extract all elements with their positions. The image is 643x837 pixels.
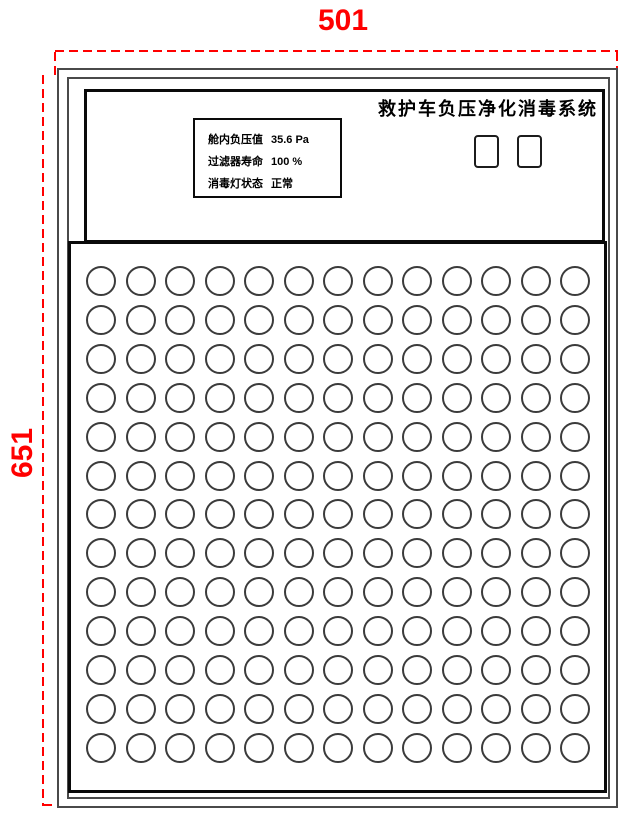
vent-hole bbox=[323, 305, 353, 335]
vent-hole bbox=[323, 499, 353, 529]
vent-hole bbox=[560, 733, 590, 763]
vent-hole bbox=[205, 538, 235, 568]
vent-hole bbox=[205, 577, 235, 607]
vent-hole bbox=[323, 538, 353, 568]
status-display: 舱内负压值 35.6 Pa 过滤器寿命 100 % 消毒灯状态 正常 bbox=[193, 118, 342, 198]
vent-hole bbox=[165, 694, 195, 724]
vent-hole bbox=[521, 538, 551, 568]
vent-hole bbox=[205, 655, 235, 685]
vent-hole bbox=[363, 733, 393, 763]
vent-hole bbox=[521, 655, 551, 685]
control-section: 救护车负压净化消毒系统 舱内负压值 35.6 Pa 过滤器寿命 100 % 消毒… bbox=[84, 89, 605, 243]
status-label: 消毒灯状态 bbox=[208, 173, 263, 195]
vent-hole bbox=[165, 538, 195, 568]
vent-hole bbox=[165, 655, 195, 685]
vent-hole bbox=[284, 461, 314, 491]
vent-hole bbox=[402, 538, 432, 568]
vent-hole bbox=[521, 616, 551, 646]
vent-hole bbox=[244, 577, 274, 607]
vent-hole bbox=[363, 499, 393, 529]
vent-hole bbox=[442, 499, 472, 529]
vent-hole bbox=[560, 577, 590, 607]
vent-hole bbox=[165, 422, 195, 452]
vent-hole bbox=[442, 461, 472, 491]
dimension-line-top bbox=[55, 50, 618, 52]
vent-hole bbox=[205, 422, 235, 452]
vent-hole bbox=[126, 694, 156, 724]
vent-hole bbox=[244, 499, 274, 529]
vent-hole bbox=[126, 305, 156, 335]
status-line-pressure: 舱内负压值 35.6 Pa bbox=[208, 129, 340, 151]
vent-hole bbox=[521, 461, 551, 491]
vent-hole bbox=[126, 383, 156, 413]
vent-hole bbox=[284, 538, 314, 568]
vent-hole bbox=[442, 422, 472, 452]
vent-hole bbox=[442, 266, 472, 296]
vent-hole bbox=[205, 305, 235, 335]
vent-hole bbox=[442, 344, 472, 374]
vent-hole bbox=[323, 733, 353, 763]
vent-hole bbox=[244, 694, 274, 724]
vent-hole bbox=[126, 461, 156, 491]
vent-hole bbox=[481, 655, 511, 685]
vent-hole bbox=[402, 305, 432, 335]
vent-hole bbox=[165, 499, 195, 529]
vent-hole bbox=[481, 344, 511, 374]
vent-hole bbox=[86, 266, 116, 296]
vent-hole bbox=[442, 655, 472, 685]
vent-hole bbox=[126, 616, 156, 646]
status-value: 正常 bbox=[271, 173, 293, 195]
vent-hole bbox=[205, 383, 235, 413]
vent-hole bbox=[481, 422, 511, 452]
vent-hole bbox=[205, 344, 235, 374]
vent-hole bbox=[481, 305, 511, 335]
vent-hole bbox=[560, 344, 590, 374]
vent-hole bbox=[481, 383, 511, 413]
status-line-filter: 过滤器寿命 100 % bbox=[208, 151, 340, 173]
vent-hole bbox=[402, 577, 432, 607]
vent-hole bbox=[323, 616, 353, 646]
vent-hole bbox=[284, 733, 314, 763]
vent-hole bbox=[402, 422, 432, 452]
vent-hole bbox=[165, 733, 195, 763]
vent-hole bbox=[402, 383, 432, 413]
vent-hole bbox=[165, 266, 195, 296]
vent-hole bbox=[205, 616, 235, 646]
vent-hole bbox=[481, 461, 511, 491]
vent-hole bbox=[165, 383, 195, 413]
status-line-lamp: 消毒灯状态 正常 bbox=[208, 173, 340, 195]
vent-hole bbox=[284, 616, 314, 646]
vent-hole bbox=[560, 499, 590, 529]
vent-hole bbox=[560, 461, 590, 491]
panel-button-2 bbox=[517, 135, 542, 168]
vent-hole bbox=[244, 305, 274, 335]
vent-hole bbox=[126, 499, 156, 529]
vent-hole bbox=[560, 266, 590, 296]
vent-hole bbox=[363, 461, 393, 491]
vent-hole bbox=[442, 383, 472, 413]
status-label: 过滤器寿命 bbox=[208, 151, 263, 173]
vent-hole bbox=[86, 305, 116, 335]
vent-hole bbox=[86, 422, 116, 452]
panel-drawing: 501 651 救护车负压净化消毒系统 舱内负压值 35.6 Pa 过滤器寿命 … bbox=[0, 0, 643, 837]
vent-hole bbox=[126, 538, 156, 568]
vent-hole bbox=[442, 694, 472, 724]
vent-hole bbox=[481, 266, 511, 296]
dimension-height-label: 651 bbox=[7, 417, 39, 489]
vent-hole bbox=[521, 733, 551, 763]
vent-hole bbox=[165, 305, 195, 335]
vent-hole bbox=[323, 266, 353, 296]
vent-hole bbox=[165, 577, 195, 607]
vent-hole bbox=[205, 266, 235, 296]
vent-hole bbox=[244, 422, 274, 452]
vent-hole bbox=[126, 733, 156, 763]
vent-hole bbox=[165, 461, 195, 491]
status-value: 100 % bbox=[271, 151, 302, 173]
vent-hole bbox=[165, 344, 195, 374]
vent-hole bbox=[363, 577, 393, 607]
vent-hole bbox=[86, 577, 116, 607]
vent-hole bbox=[521, 577, 551, 607]
vent-hole bbox=[244, 461, 274, 491]
dimension-line-left bbox=[42, 75, 44, 806]
vent-hole bbox=[521, 344, 551, 374]
vent-hole bbox=[442, 538, 472, 568]
vent-hole bbox=[521, 305, 551, 335]
vent-hole bbox=[86, 733, 116, 763]
vent-hole bbox=[244, 655, 274, 685]
vent-hole bbox=[244, 383, 274, 413]
vent-hole bbox=[126, 655, 156, 685]
vent-hole bbox=[284, 577, 314, 607]
vent-hole bbox=[363, 344, 393, 374]
vent-hole bbox=[284, 266, 314, 296]
vent-hole bbox=[323, 694, 353, 724]
dimension-width-label: 501 bbox=[303, 5, 383, 37]
vent-hole bbox=[126, 344, 156, 374]
vent-hole-grid bbox=[68, 241, 607, 793]
vent-hole bbox=[86, 616, 116, 646]
vent-hole bbox=[560, 655, 590, 685]
vent-hole bbox=[284, 422, 314, 452]
vent-hole bbox=[560, 422, 590, 452]
vent-hole bbox=[363, 655, 393, 685]
vent-hole bbox=[521, 499, 551, 529]
vent-hole bbox=[363, 305, 393, 335]
vent-hole bbox=[323, 344, 353, 374]
vent-hole bbox=[244, 344, 274, 374]
vent-hole bbox=[323, 461, 353, 491]
vent-hole bbox=[402, 461, 432, 491]
vent-hole bbox=[363, 616, 393, 646]
vent-hole bbox=[205, 461, 235, 491]
vent-hole bbox=[560, 694, 590, 724]
status-label: 舱内负压值 bbox=[208, 129, 263, 151]
vent-hole bbox=[205, 499, 235, 529]
vent-hole bbox=[402, 733, 432, 763]
vent-hole bbox=[481, 538, 511, 568]
vent-hole bbox=[481, 694, 511, 724]
vent-hole bbox=[205, 694, 235, 724]
vent-hole bbox=[244, 538, 274, 568]
vent-hole bbox=[284, 499, 314, 529]
vent-hole bbox=[363, 383, 393, 413]
vent-hole bbox=[86, 461, 116, 491]
vent-hole bbox=[284, 383, 314, 413]
vent-hole bbox=[86, 383, 116, 413]
vent-hole bbox=[323, 383, 353, 413]
vent-hole bbox=[205, 733, 235, 763]
vent-hole bbox=[521, 266, 551, 296]
vent-hole bbox=[126, 577, 156, 607]
vent-hole bbox=[521, 383, 551, 413]
vent-hole bbox=[560, 383, 590, 413]
vent-hole bbox=[521, 694, 551, 724]
vent-hole bbox=[86, 344, 116, 374]
vent-hole bbox=[323, 422, 353, 452]
vent-hole bbox=[402, 344, 432, 374]
vent-hole bbox=[363, 538, 393, 568]
vent-hole bbox=[126, 422, 156, 452]
panel-title: 救护车负压净化消毒系统 bbox=[378, 95, 598, 121]
vent-hole bbox=[363, 266, 393, 296]
vent-hole bbox=[442, 577, 472, 607]
vent-hole bbox=[402, 266, 432, 296]
vent-hole bbox=[323, 655, 353, 685]
vent-hole bbox=[86, 538, 116, 568]
status-value: 35.6 Pa bbox=[271, 129, 309, 151]
vent-hole bbox=[363, 694, 393, 724]
vent-hole bbox=[86, 655, 116, 685]
vent-hole bbox=[244, 266, 274, 296]
vent-hole bbox=[442, 305, 472, 335]
vent-hole bbox=[402, 655, 432, 685]
vent-hole bbox=[481, 616, 511, 646]
vent-hole bbox=[284, 305, 314, 335]
vent-hole bbox=[402, 616, 432, 646]
vent-hole bbox=[560, 305, 590, 335]
vent-hole bbox=[126, 266, 156, 296]
vent-hole bbox=[402, 499, 432, 529]
vent-hole bbox=[560, 616, 590, 646]
vent-hole bbox=[521, 422, 551, 452]
dimension-line-top-left-extension bbox=[54, 52, 56, 78]
vent-hole bbox=[481, 577, 511, 607]
panel-button-1 bbox=[474, 135, 499, 168]
vent-hole bbox=[481, 733, 511, 763]
vent-hole bbox=[284, 694, 314, 724]
vent-hole bbox=[244, 616, 274, 646]
vent-hole bbox=[244, 733, 274, 763]
vent-hole bbox=[86, 499, 116, 529]
vent-hole bbox=[363, 422, 393, 452]
vent-hole bbox=[86, 694, 116, 724]
vent-hole bbox=[402, 694, 432, 724]
vent-hole bbox=[442, 733, 472, 763]
vent-hole bbox=[284, 344, 314, 374]
vent-hole bbox=[442, 616, 472, 646]
vent-hole bbox=[481, 499, 511, 529]
vent-hole bbox=[284, 655, 314, 685]
vent-hole bbox=[165, 616, 195, 646]
vent-hole bbox=[323, 577, 353, 607]
vent-hole bbox=[560, 538, 590, 568]
